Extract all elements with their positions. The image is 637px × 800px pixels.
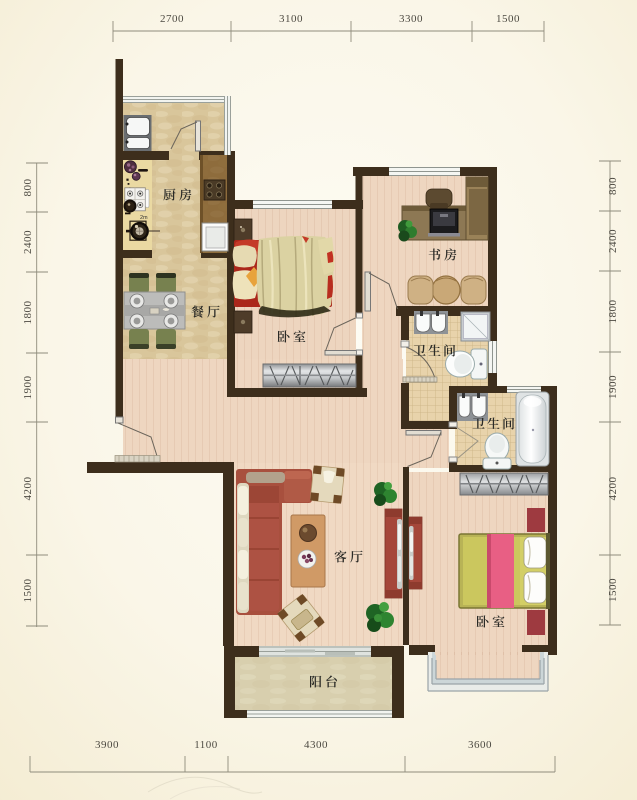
svg-text:1900: 1900 xyxy=(607,375,619,399)
svg-text:1500: 1500 xyxy=(496,13,520,25)
svg-text:2400: 2400 xyxy=(607,229,619,253)
svg-text:800: 800 xyxy=(22,179,34,197)
svg-text:1500: 1500 xyxy=(22,579,34,603)
svg-text:4200: 4200 xyxy=(22,477,34,501)
svg-text:3100: 3100 xyxy=(279,13,303,25)
svg-text:1500: 1500 xyxy=(607,578,619,602)
svg-text:800: 800 xyxy=(607,177,619,195)
svg-text:2m: 2m xyxy=(140,215,148,221)
svg-text:4300: 4300 xyxy=(304,739,328,751)
svg-text:3600: 3600 xyxy=(468,739,492,751)
svg-text:2700: 2700 xyxy=(160,13,184,25)
svg-text:1900: 1900 xyxy=(22,376,34,400)
svg-text:1800: 1800 xyxy=(22,301,34,325)
svg-text:4200: 4200 xyxy=(607,477,619,501)
svg-text:1800: 1800 xyxy=(607,300,619,324)
svg-text:3300: 3300 xyxy=(399,13,423,25)
svg-text:3900: 3900 xyxy=(95,739,119,751)
svg-text:2400: 2400 xyxy=(22,230,34,254)
svg-text:1100: 1100 xyxy=(194,739,218,751)
